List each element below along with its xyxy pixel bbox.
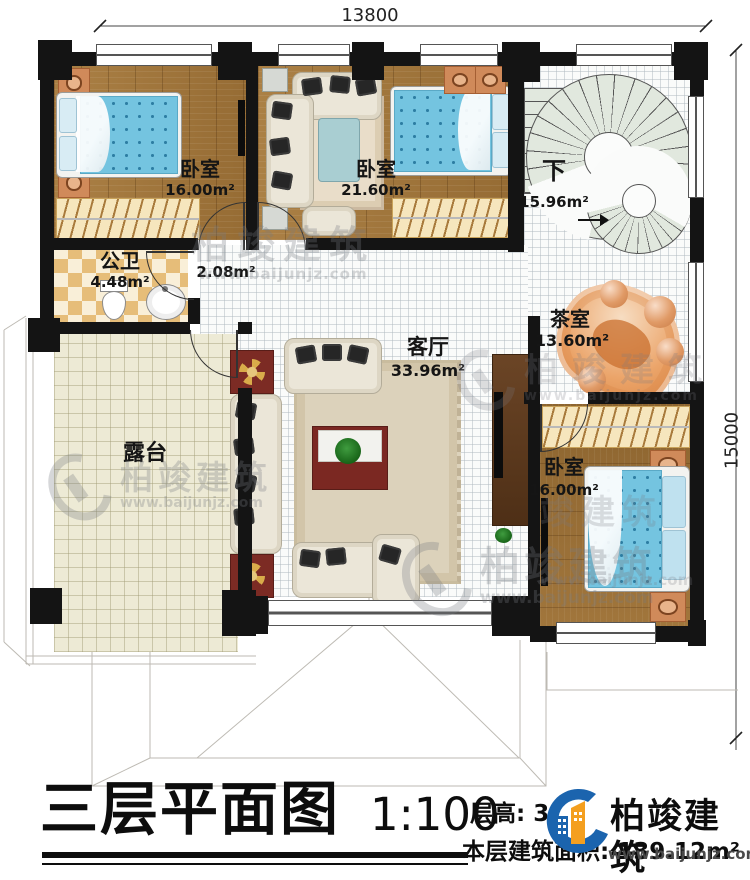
window-living-south (268, 600, 492, 626)
wall-bedroom3-west (528, 404, 540, 632)
pillow (269, 137, 291, 157)
bed-sheet (76, 96, 110, 172)
wall-corner-br (688, 620, 706, 646)
door-leaf-bedroom3 (540, 404, 542, 452)
drawing-title: 三层平面图 (40, 780, 362, 838)
wall-right (690, 196, 704, 264)
pillow (59, 136, 77, 171)
window (96, 44, 212, 66)
window-bedroom3-south (556, 622, 656, 644)
nightstand (444, 66, 476, 94)
window (278, 44, 350, 66)
wall-bathroom-south (38, 322, 190, 334)
area-bedroom2: 21.60m² (324, 182, 428, 199)
floor-plan-page: 13800 15000 (0, 0, 750, 880)
bed-sheet (458, 90, 490, 170)
stone-ball (644, 296, 676, 328)
label-stairwell: 下 (536, 158, 572, 184)
window (688, 262, 704, 382)
wall-right (690, 380, 704, 632)
area-bedroom3: 16.00m² (514, 482, 614, 499)
pillow (325, 547, 347, 566)
tv-living (494, 392, 503, 478)
window (576, 44, 672, 66)
floor-terrace (54, 334, 238, 652)
wall-bedroom3-north (524, 392, 540, 404)
label-bedroom2: 卧室 (326, 158, 426, 180)
stair-arrow-head (600, 214, 609, 226)
speaker-table (262, 68, 288, 92)
door-leaf-terrace (236, 330, 238, 378)
label-bathroom: 公卫 (88, 250, 152, 272)
door-leaf-bathroom (146, 251, 194, 253)
chaise (372, 534, 420, 606)
wall-bedroom-south (306, 238, 524, 250)
stair-tail-core (622, 184, 656, 218)
company-logo-icon (538, 786, 612, 872)
nightstand (650, 592, 686, 622)
wall-bathroom-hall (188, 298, 200, 324)
drawing-scale: 1:100 (370, 792, 474, 837)
pillow (271, 101, 293, 121)
company-website: www.baijunjz.com (608, 845, 750, 863)
pillow (662, 476, 686, 528)
wall-column (234, 596, 268, 634)
dimension-height-label: 15000 (722, 411, 743, 471)
closet-bedroom2 (392, 198, 510, 238)
stone-ball (578, 366, 606, 394)
wall-bedroom2-stair (508, 60, 524, 252)
area-living-room: 33.96m² (390, 362, 466, 380)
wall-corner (238, 322, 252, 334)
area-hallway: 2.08m² (196, 264, 256, 281)
company-name: 柏竣建筑 (610, 796, 750, 880)
tv-bedroom1 (238, 100, 245, 156)
terrace-column (30, 588, 62, 624)
area-bathroom: 4.48m² (84, 274, 156, 291)
label-bedroom3: 卧室 (520, 456, 608, 478)
label-bedroom1: 卧室 (150, 158, 250, 180)
pillow (295, 344, 318, 364)
wall-living-west (238, 388, 252, 598)
dimension-width-label: 13800 (323, 5, 417, 26)
pouf (302, 206, 356, 236)
tv-bedroom3 (541, 498, 548, 586)
terrace-column (28, 318, 60, 352)
wall-right (690, 52, 704, 98)
area-bedroom1: 16.00m² (148, 182, 252, 199)
door-leaf-bedroom2 (257, 202, 259, 250)
area-tea-room: 13.60m² (532, 332, 612, 350)
stone-ball (600, 280, 628, 308)
plant (335, 438, 361, 464)
label-terrace: 露台 (95, 442, 195, 466)
title-rule-thick (42, 852, 468, 858)
wall-left (40, 52, 54, 334)
stair-direction-arrow (578, 219, 602, 221)
pillow (59, 98, 77, 133)
title-rule-thin (42, 863, 468, 865)
window (420, 44, 498, 66)
stone-ball (656, 338, 684, 366)
pillow (329, 75, 351, 94)
door-leaf-bedroom1 (243, 202, 245, 250)
pillow (662, 530, 686, 580)
pillow (301, 77, 323, 97)
window (688, 96, 704, 198)
area-stairwell: 15.96m² (516, 194, 592, 211)
pillow (322, 344, 342, 361)
plant-small (495, 528, 512, 543)
wall-bedroom3-north (588, 392, 704, 404)
label-tea-room: 茶室 (538, 308, 602, 330)
label-living-room: 客厅 (398, 336, 458, 359)
pillow (299, 549, 321, 569)
wall-column (352, 42, 384, 80)
pillow (271, 170, 294, 190)
closet-bedroom1 (56, 198, 200, 240)
